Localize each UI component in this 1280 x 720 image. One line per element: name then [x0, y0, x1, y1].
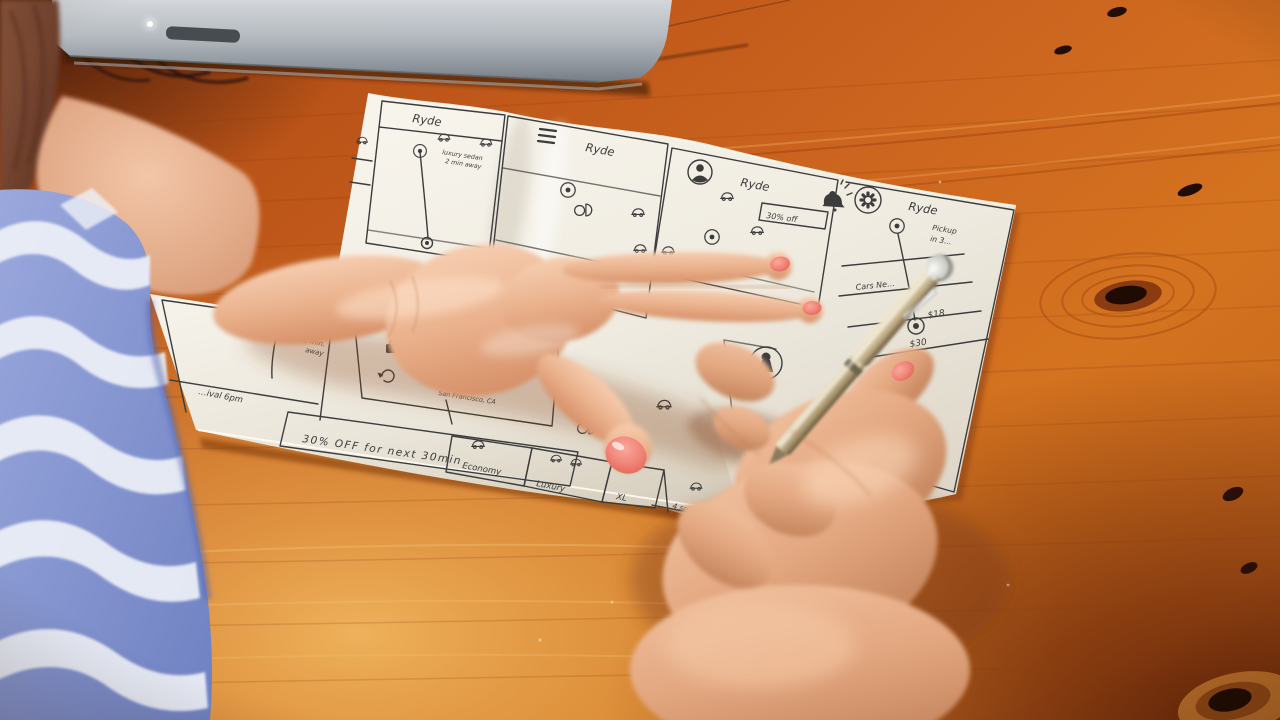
photo-scene: Ryde luxury sedan 2 min away Ryde Ry [0, 0, 1280, 720]
vignette [0, 0, 1280, 720]
